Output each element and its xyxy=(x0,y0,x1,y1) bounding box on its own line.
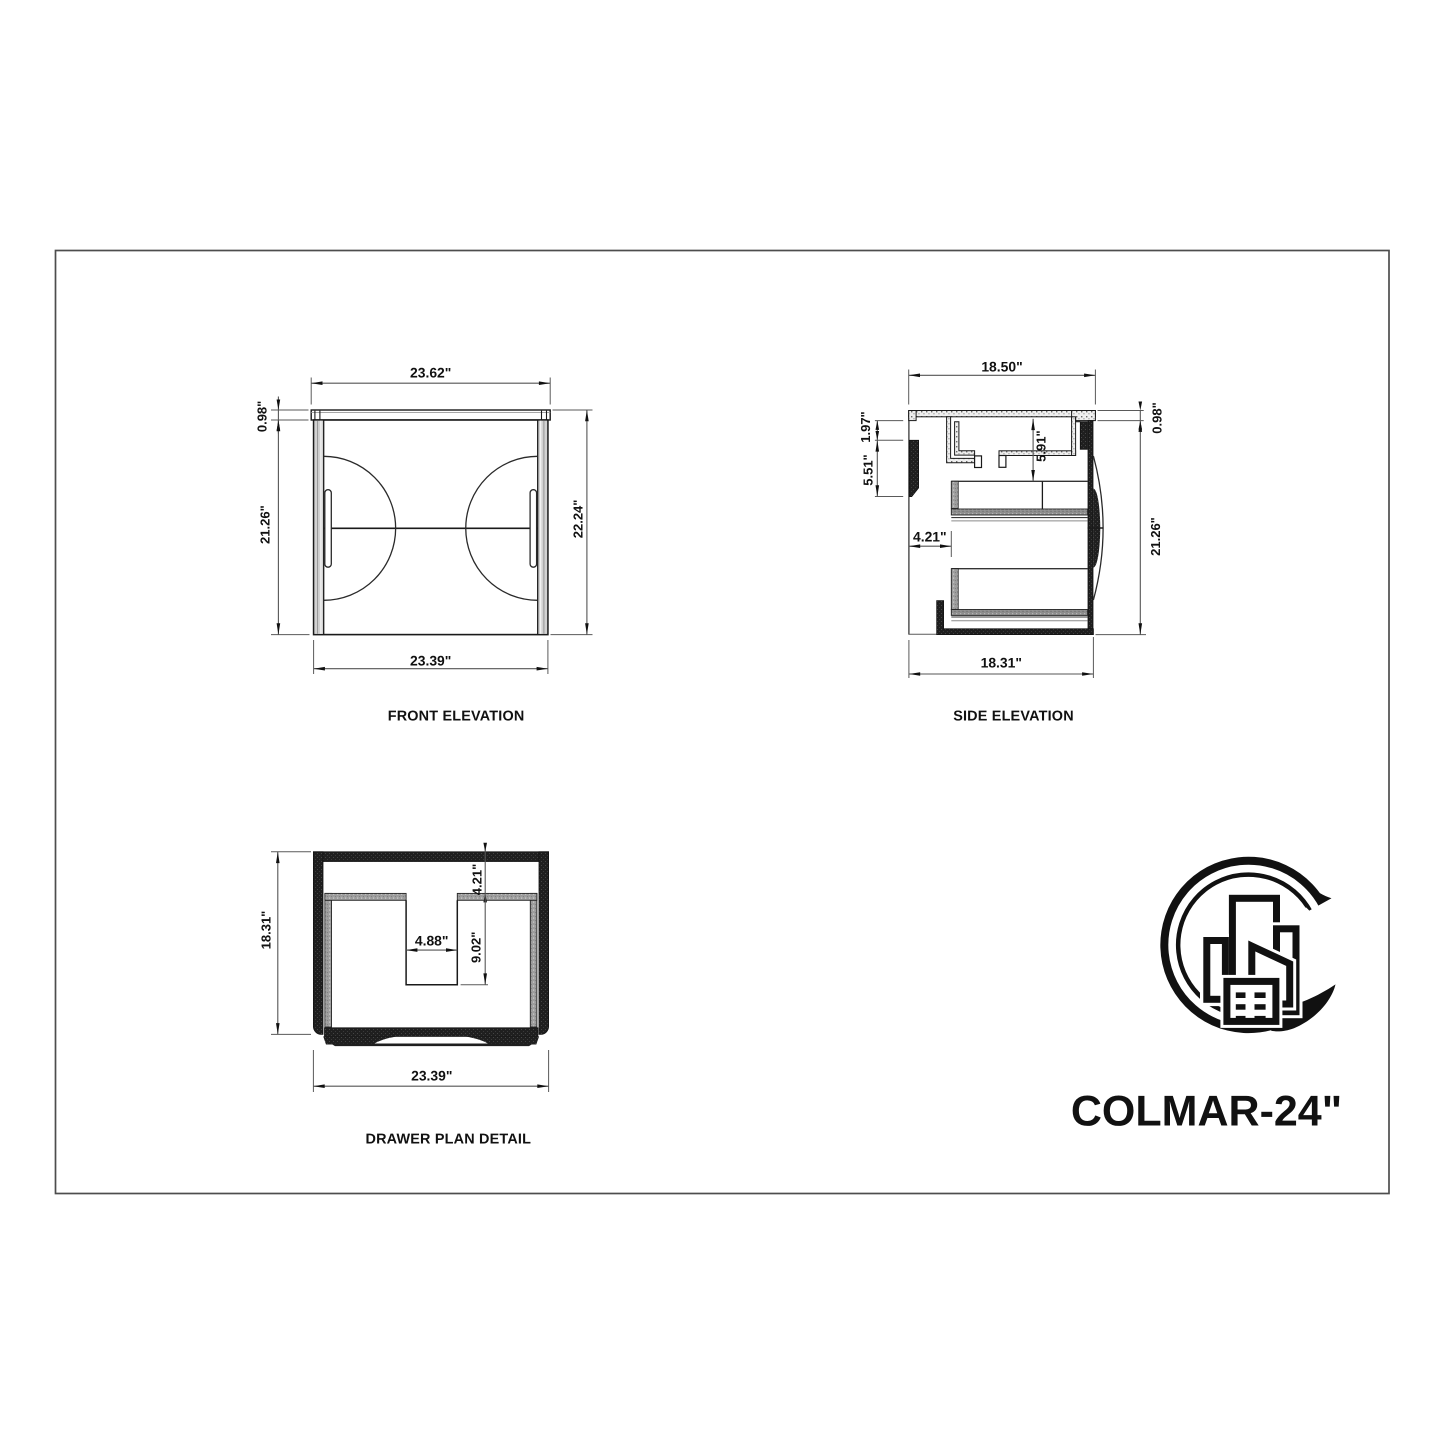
svg-text:23.62": 23.62" xyxy=(410,364,451,380)
svg-text:5.91": 5.91" xyxy=(1034,430,1049,461)
svg-text:21.26": 21.26" xyxy=(257,505,272,544)
svg-text:FRONT ELEVATION: FRONT ELEVATION xyxy=(388,709,525,725)
svg-text:DRAWER PLAN DETAIL: DRAWER PLAN DETAIL xyxy=(365,1131,531,1147)
svg-text:SIDE ELEVATION: SIDE ELEVATION xyxy=(953,709,1074,725)
svg-text:18.31": 18.31" xyxy=(981,655,1022,671)
svg-text:18.50": 18.50" xyxy=(981,358,1022,374)
svg-text:4.88": 4.88" xyxy=(415,933,449,949)
svg-text:1.97": 1.97" xyxy=(858,411,873,442)
svg-text:4.21": 4.21" xyxy=(913,529,947,545)
svg-text:5.51": 5.51" xyxy=(861,454,876,485)
svg-text:0.98": 0.98" xyxy=(255,401,270,432)
svg-text:18.31": 18.31" xyxy=(259,911,274,950)
svg-text:9.02": 9.02" xyxy=(468,932,483,963)
svg-text:23.39": 23.39" xyxy=(411,1067,452,1083)
svg-text:21.26": 21.26" xyxy=(1148,517,1163,556)
svg-text:22.24": 22.24" xyxy=(570,500,585,539)
svg-text:23.39": 23.39" xyxy=(410,652,451,668)
svg-text:4.21": 4.21" xyxy=(470,864,485,895)
svg-text:0.98": 0.98" xyxy=(1150,402,1165,433)
svg-text:COLMAR-24": COLMAR-24" xyxy=(1071,1088,1342,1136)
